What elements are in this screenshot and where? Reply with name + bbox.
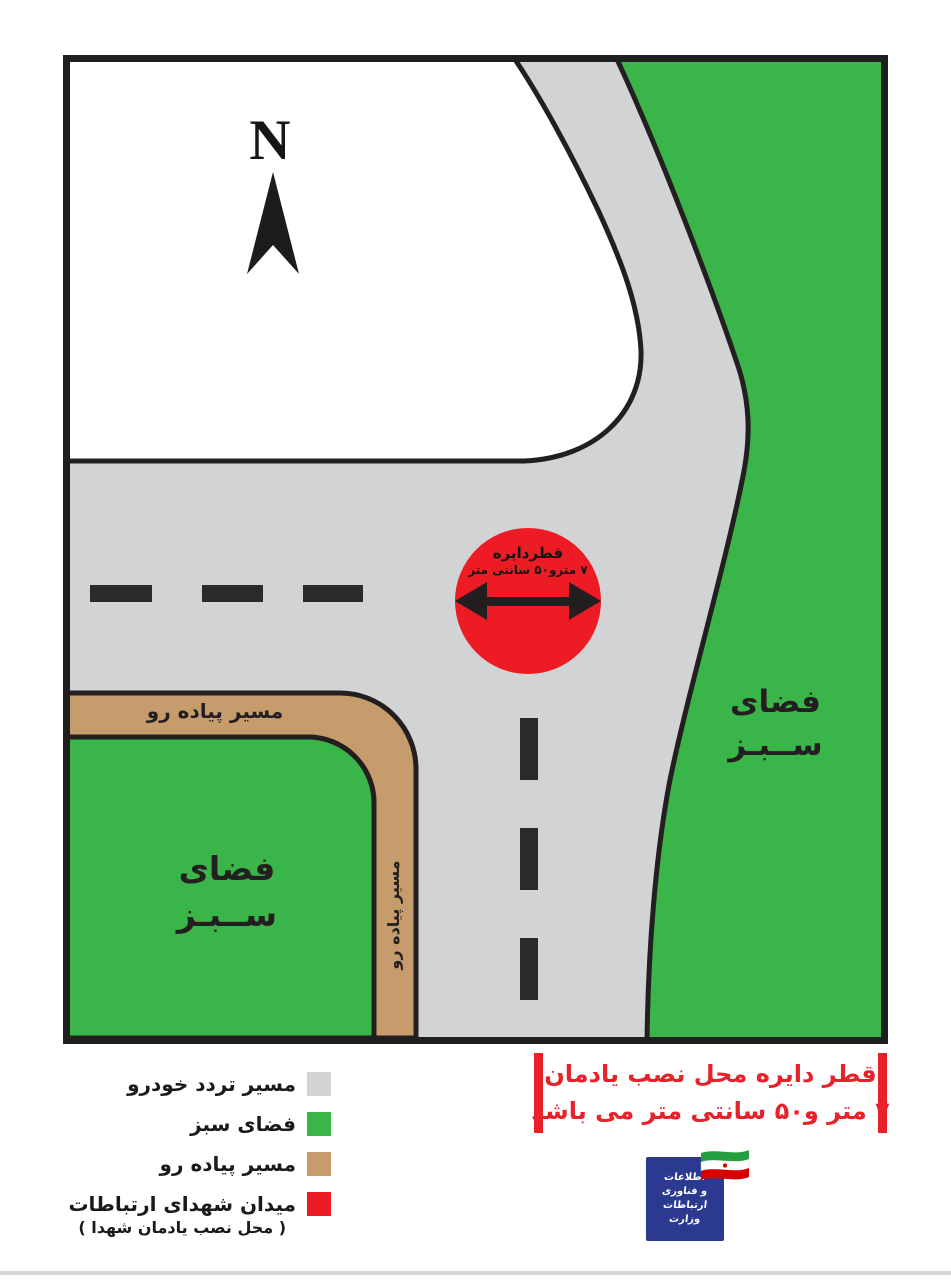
legend: مسیر تردد خودرو فضای سبز مسیر پیاده رو م… xyxy=(63,1072,331,1239)
note-line2: ۷ متر و۵۰ سانتی متر می باشد xyxy=(531,1093,890,1130)
road-swatch xyxy=(307,1072,331,1096)
bottom-divider xyxy=(0,1271,951,1275)
green-swatch xyxy=(307,1112,331,1136)
diameter-note: قطر دایره محل نصب یادمان ۷ متر و۵۰ سانتی… xyxy=(534,1053,887,1133)
legend-label: مسیر پیاده رو xyxy=(160,1152,296,1177)
legend-label: میدان شهدای ارتباطات xyxy=(68,1192,296,1216)
legend-label: فضای سبز xyxy=(190,1112,296,1137)
iran-flag-icon xyxy=(699,1147,751,1181)
legend-item-sidewalk: مسیر پیاده رو xyxy=(63,1152,331,1177)
logo-line: ارتباطات xyxy=(662,1199,707,1213)
site-plan-map xyxy=(63,55,888,1044)
lane-dashes-vertical xyxy=(520,718,538,1000)
legend-item-road: مسیر تردد خودرو xyxy=(63,1072,331,1097)
logo-line: وزارت xyxy=(669,1213,702,1227)
lane-dashes-horizontal xyxy=(90,585,363,602)
sidewalk-swatch xyxy=(307,1152,331,1176)
legend-label: مسیر تردد خودرو xyxy=(127,1072,296,1097)
memorial-swatch xyxy=(307,1192,331,1216)
legend-item-green: فضای سبز xyxy=(63,1112,331,1137)
legend-item-square: میدان شهدای ارتباطات ( محل نصب یادمان شه… xyxy=(63,1192,331,1239)
logo-line: و فناوری xyxy=(662,1185,709,1199)
site-plan-page: N قطردایره ۷ مترو۵۰ سانتی متر فضای ســبـ… xyxy=(0,0,951,1280)
note-line1: قطر دایره محل نصب یادمان xyxy=(544,1056,876,1093)
green-space-left xyxy=(63,737,374,1038)
legend-sublabel: ( محل نصب یادمان شهدا ) xyxy=(68,1217,296,1239)
